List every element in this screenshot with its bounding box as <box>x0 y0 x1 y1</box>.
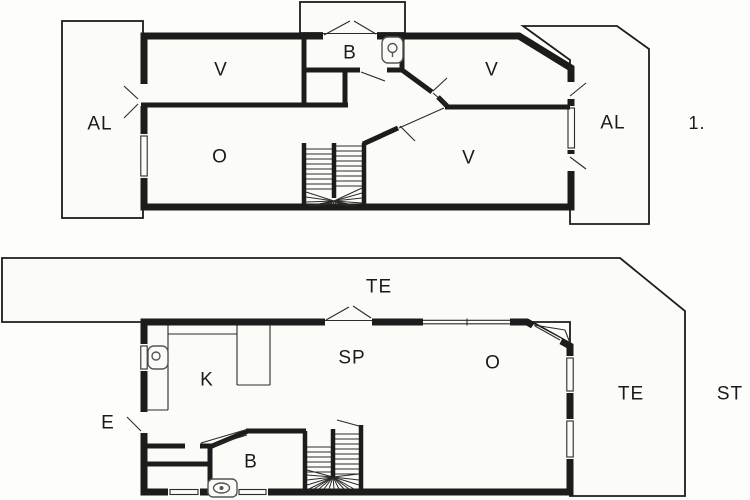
room-label-entrance: E <box>101 414 115 433</box>
room-label-bedroom-nw: V <box>214 61 228 80</box>
room-label-kitchen: K <box>200 371 214 390</box>
room-label-bedroom-ne: V <box>485 61 499 80</box>
bay-opening <box>323 32 377 41</box>
bay-window-outline <box>300 2 405 33</box>
toilet-icon <box>382 37 403 63</box>
room-label-living-ground: O <box>485 354 501 373</box>
sink-icon <box>148 346 168 369</box>
terrace-door-opening <box>325 318 372 327</box>
door-swing <box>127 417 141 431</box>
upper-plan <box>62 2 649 224</box>
room-label-terrace-top: TE <box>366 278 392 297</box>
toilet-icon <box>208 479 237 497</box>
room-label-bathroom-ground: B <box>244 453 258 472</box>
floor-plan-page: AL V B V AL O V 1. TE K SP O TE ST E B <box>0 0 750 500</box>
room-label-terrace-right: TE <box>618 385 644 404</box>
floor-indicator-upper: 1. <box>688 114 705 132</box>
room-label-bathroom-upper: B <box>343 44 357 63</box>
room-label-bedroom-se: V <box>462 149 476 168</box>
east-door-opening <box>567 82 577 99</box>
ground-plan <box>2 258 685 497</box>
room-label-living-upper: O <box>212 148 228 167</box>
room-label-balcony-left: AL <box>87 115 112 134</box>
east-door-opening <box>567 154 577 171</box>
floor-indicator-ground: ST <box>717 385 743 404</box>
room-label-dining: SP <box>338 349 365 368</box>
room-label-balcony-right: AL <box>600 114 625 133</box>
